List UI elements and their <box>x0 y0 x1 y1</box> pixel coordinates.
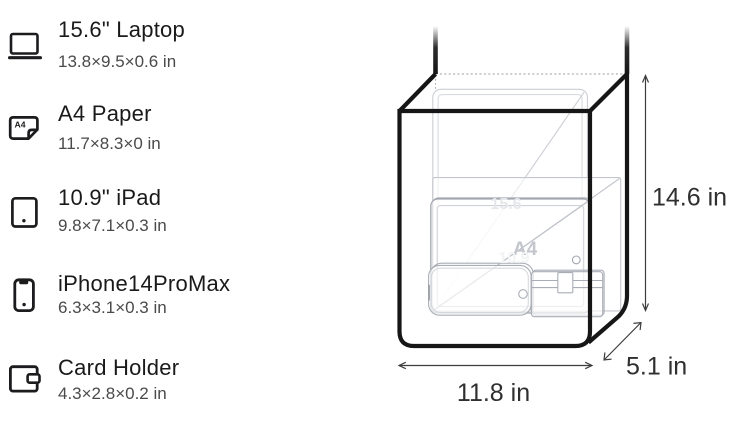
svg-text:15.6: 15.6 <box>490 196 521 213</box>
svg-text:5.1 in: 5.1 in <box>626 353 687 381</box>
svg-text:11.8 in: 11.8 in <box>457 379 530 407</box>
svg-text:14.6 in: 14.6 in <box>652 184 727 212</box>
svg-text:10.9: 10.9 <box>498 250 529 267</box>
